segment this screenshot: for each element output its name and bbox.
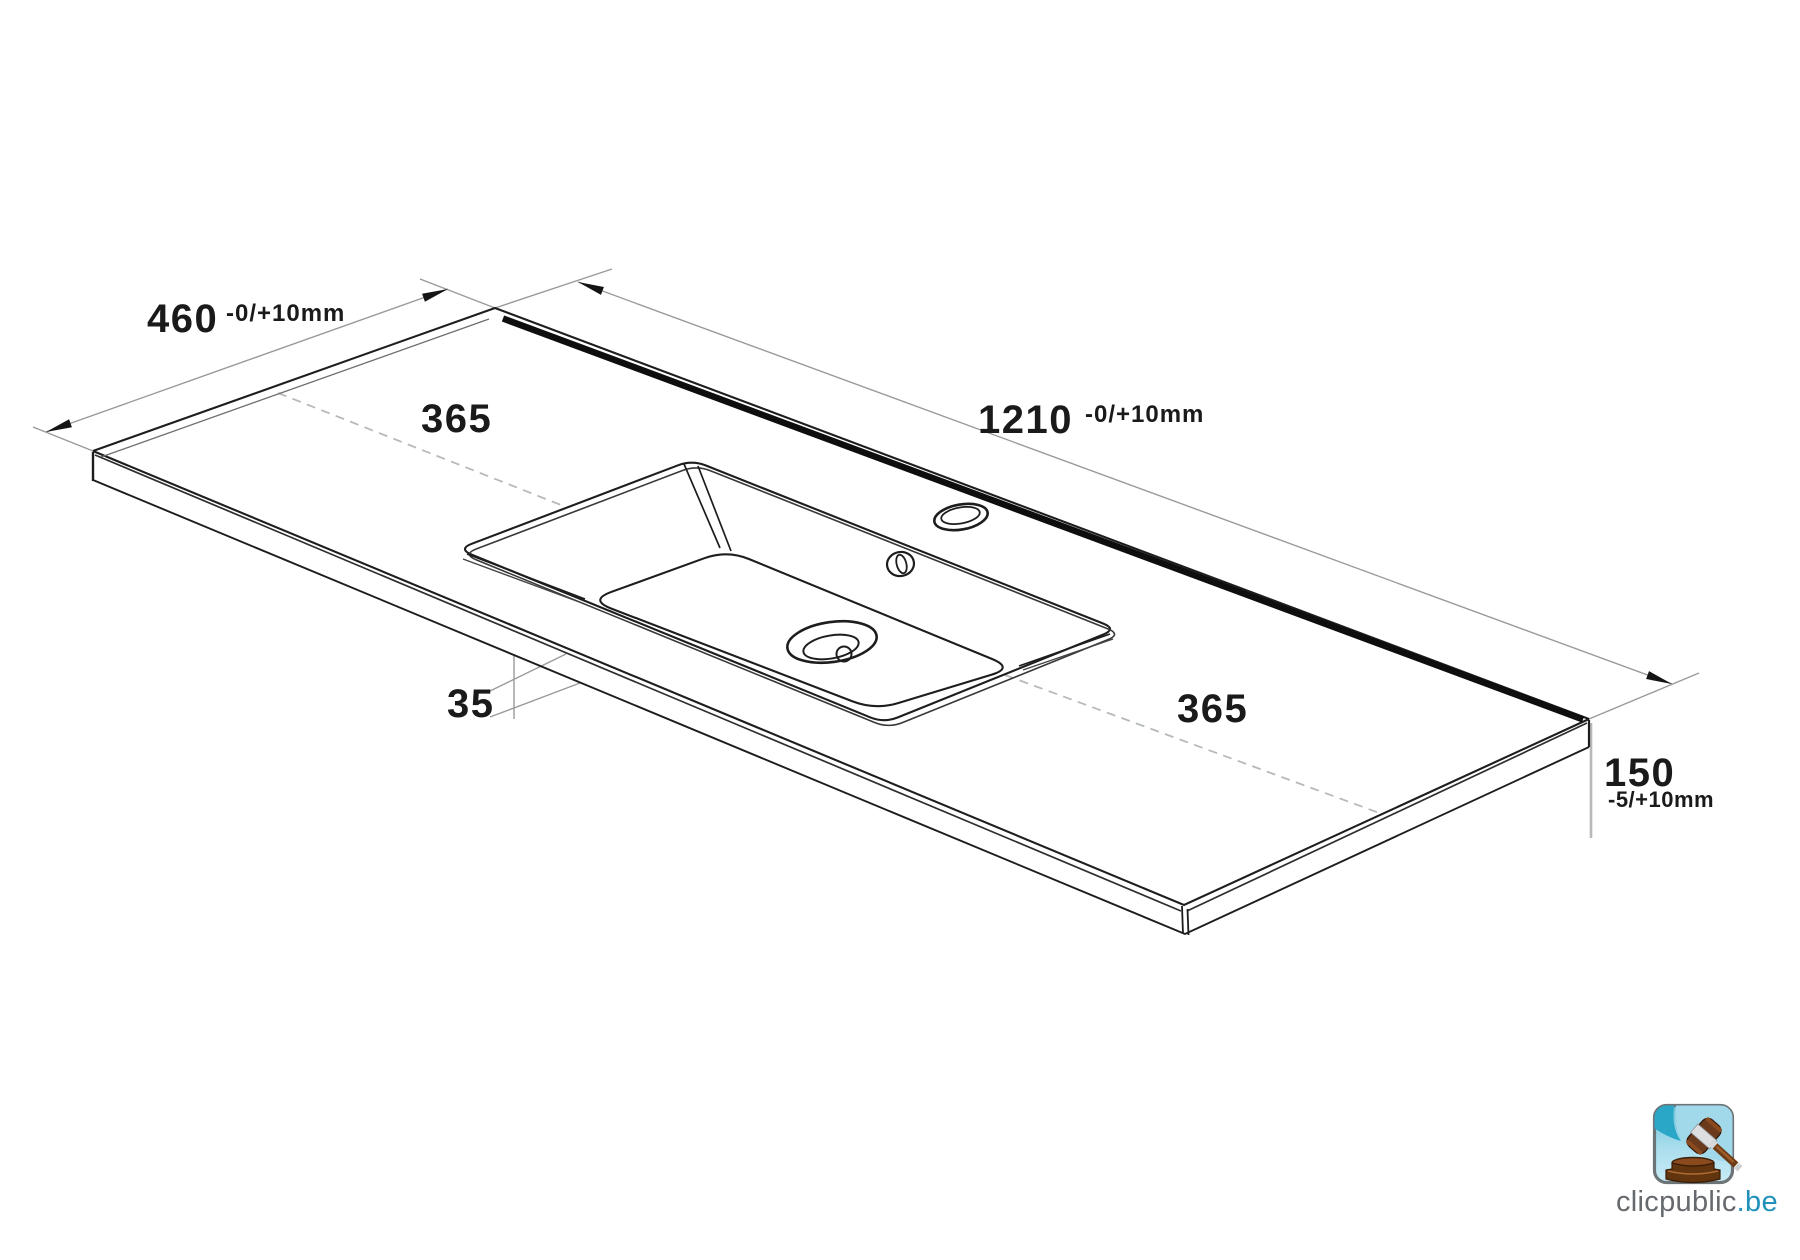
svg-text:460: 460	[147, 297, 218, 341]
svg-text:365: 365	[421, 397, 492, 441]
svg-text:365: 365	[1177, 687, 1248, 731]
svg-text:clicpublic.be: clicpublic.be	[1616, 1186, 1778, 1218]
svg-text:-0/+10mm: -0/+10mm	[1085, 401, 1204, 428]
svg-text:-0/+10mm: -0/+10mm	[226, 300, 345, 327]
svg-text:1210: 1210	[978, 398, 1073, 442]
svg-text:35: 35	[447, 682, 495, 726]
svg-text:-5/+10mm: -5/+10mm	[1608, 787, 1714, 812]
